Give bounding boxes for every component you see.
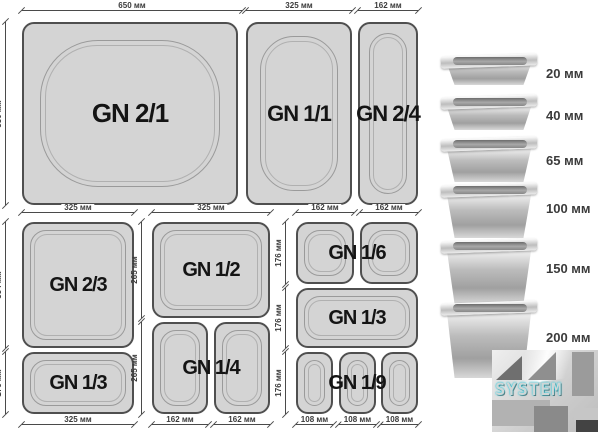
dim-label-650: 650 мм (115, 2, 148, 10)
dim-label-br-162a: 162 мм (308, 204, 341, 212)
photo-pan-100mm (441, 184, 537, 238)
dim-br-108b: 108 мм (339, 424, 376, 425)
pan-gn13-right-label: GN 1/3 (298, 290, 416, 346)
pan-gn19-b (339, 352, 376, 414)
dim-label-176b: 176 мм (275, 304, 283, 331)
dim-top-gn11: 325 мм (246, 10, 352, 11)
pan-gn12: GN 1/2 (152, 222, 270, 318)
pan-opening (453, 98, 527, 106)
dim-label-162-top: 162 мм (371, 2, 404, 10)
pan-gn12-label: GN 1/2 (154, 224, 268, 316)
pan-gn24: GN 2/4 (358, 22, 418, 205)
pan-gn24-label: GN 2/4 (360, 24, 416, 203)
logo-block-lower-mid (534, 406, 568, 432)
dim-label-108c: 108 мм (383, 416, 416, 424)
pan-body (447, 149, 531, 182)
dim-bl-176: 176 мм (5, 352, 6, 414)
dim-br-176c: 176 мм (285, 352, 286, 414)
pan-body (447, 107, 531, 130)
dim-label-176c: 176 мм (275, 369, 283, 396)
dim-label-108a: 108 мм (298, 416, 331, 424)
system-watermark-logo: SYSTEM (492, 350, 598, 432)
dim-label-265b: 265 мм (131, 354, 139, 381)
dim-label-162a: 162 мм (163, 416, 196, 424)
photo-pan-40mm (441, 96, 537, 130)
dim-top-gn24: 162 мм (358, 10, 418, 11)
pan-opening (453, 140, 527, 148)
dim-br-176b: 176 мм (285, 288, 286, 348)
depth-label-40mm: 40 мм (546, 108, 583, 123)
dim-br-162a: 162 мм (296, 212, 354, 213)
dim-label-br-162b: 162 мм (372, 204, 405, 212)
dim-br-108a: 108 мм (296, 424, 333, 425)
pan-opening (453, 57, 527, 65)
pan-gn13-left-label: GN 1/3 (24, 354, 132, 412)
photo-pan-150mm (441, 240, 537, 304)
pan-gn21: GN 2/1 (22, 22, 238, 205)
dim-label-265a: 265 мм (131, 256, 139, 283)
pan-gn14-b (214, 322, 270, 414)
dim-left-gn21: 530 мм (5, 22, 6, 205)
pan-gn19-a (296, 352, 333, 414)
dim-label-bl-top: 325 мм (61, 204, 94, 212)
dim-bl-354: 354 мм (5, 222, 6, 348)
pan-gn13-right: GN 1/3 (296, 288, 418, 348)
logo-fineprint-block (576, 420, 598, 432)
dim-bm-top: 325 мм (152, 212, 270, 213)
pan-opening (453, 304, 527, 312)
pan-gn16-a (296, 222, 354, 284)
pan-gn23: GN 2/3 (22, 222, 134, 348)
pan-body (447, 251, 531, 304)
dim-bm-162a: 162 мм (152, 424, 208, 425)
dim-bl-bottom: 325 мм (22, 424, 134, 425)
dim-label-bm-top: 325 мм (194, 204, 227, 212)
dim-label-354: 354 мм (0, 271, 3, 298)
pan-gn19-c (381, 352, 418, 414)
dim-bm-265b: 265 мм (141, 322, 142, 414)
dim-label-bl-bottom: 325 мм (61, 416, 94, 424)
dim-label-162b: 162 мм (225, 416, 258, 424)
dim-br-176a: 176 мм (285, 222, 286, 284)
dim-label-325-top: 325 мм (282, 2, 315, 10)
pan-opening (453, 242, 527, 250)
dim-bm-162b: 162 мм (214, 424, 270, 425)
gn-size-chart: 650 мм 325 мм 162 мм 530 мм GN 2/1 GN 1/… (0, 0, 600, 436)
depth-label-200mm: 200 мм (546, 330, 591, 345)
depth-label-100mm: 100 мм (546, 201, 591, 216)
dim-label-530: 530 мм (0, 100, 3, 127)
logo-text: SYSTEM (495, 380, 595, 400)
depth-label-150mm: 150 мм (546, 261, 591, 276)
dim-label-108b: 108 мм (341, 416, 374, 424)
photo-pan-65mm (441, 138, 537, 182)
dim-label-176-bl: 176 мм (0, 369, 3, 396)
pan-gn14-a (152, 322, 208, 414)
pan-gn21-label: GN 2/1 (24, 24, 236, 203)
dim-label-176a: 176 мм (275, 239, 283, 266)
dim-top-gn21: 650 мм (22, 10, 242, 11)
dim-br-162b: 162 мм (360, 212, 418, 213)
photo-pan-20mm (441, 55, 537, 85)
pan-body (447, 195, 531, 238)
pan-gn23-label: GN 2/3 (24, 224, 132, 346)
pan-gn13-left: GN 1/3 (22, 352, 134, 414)
depth-label-20mm: 20 мм (546, 66, 583, 81)
pan-gn16-b (360, 222, 418, 284)
dim-br-108c: 108 мм (381, 424, 418, 425)
pan-opening (453, 186, 527, 194)
pan-gn11-label: GN 1/1 (248, 24, 350, 203)
depth-label-65mm: 65 мм (546, 153, 583, 168)
pan-gn11: GN 1/1 (246, 22, 352, 205)
dim-bl-top: 325 мм (22, 212, 134, 213)
dim-bm-265a: 265 мм (141, 222, 142, 318)
